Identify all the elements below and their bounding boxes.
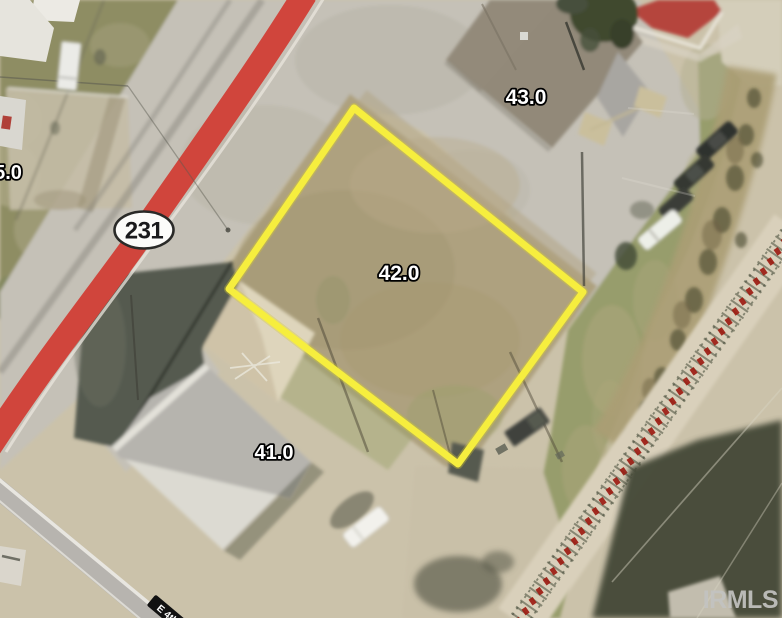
- svg-text:231: 231: [125, 218, 164, 245]
- svg-text:43.0: 43.0: [506, 86, 547, 109]
- svg-text:5.0: 5.0: [0, 162, 22, 184]
- svg-text:41.0: 41.0: [255, 442, 294, 464]
- svg-text:IRMLS: IRMLS: [703, 586, 778, 614]
- svg-text:42.0: 42.0: [379, 262, 420, 285]
